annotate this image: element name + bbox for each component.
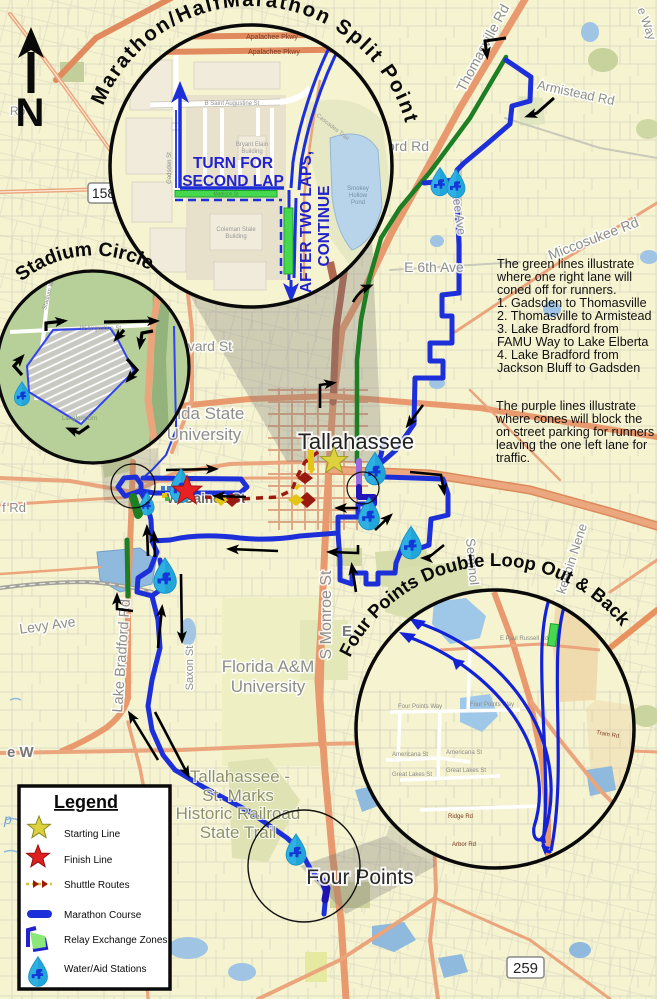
svg-text:Tallahassee -: Tallahassee - bbox=[190, 767, 290, 786]
svg-text:where one right lane will: where one right lane will bbox=[496, 270, 632, 284]
svg-text:University: University bbox=[231, 677, 306, 696]
svg-text:St. Marks: St. Marks bbox=[202, 786, 274, 805]
svg-text:where cones will block the: where cones will block the bbox=[495, 412, 642, 426]
svg-text:Jackson Bluff to Gadsden: Jackson Bluff to Gadsden bbox=[497, 361, 640, 375]
svg-text:Tallahassee: Tallahassee bbox=[298, 429, 414, 454]
svg-text:Historic Railroad: Historic Railroad bbox=[176, 804, 301, 823]
svg-text:1. Gadsden to Thomasville: 1. Gadsden to Thomasville bbox=[497, 296, 647, 310]
svg-text:N: N bbox=[16, 91, 45, 135]
svg-text:leaving the one left lane for: leaving the one left lane for bbox=[496, 438, 647, 452]
svg-text:Starting Line: Starting Line bbox=[64, 829, 121, 840]
svg-text:Pond: Pond bbox=[351, 200, 365, 206]
svg-text:Bryant Elain: Bryant Elain bbox=[236, 142, 268, 148]
svg-text:Relay Exchange Zones: Relay Exchange Zones bbox=[64, 935, 167, 946]
svg-text:Gadsden St: Gadsden St bbox=[167, 152, 173, 184]
svg-text:Americana St: Americana St bbox=[446, 750, 482, 756]
svg-text:Great Lakes St: Great Lakes St bbox=[392, 772, 432, 778]
svg-text:coned off for runners.: coned off for runners. bbox=[497, 283, 616, 297]
svg-text:Marathon Course: Marathon Course bbox=[64, 910, 142, 921]
svg-text:Shuttle Routes: Shuttle Routes bbox=[64, 880, 130, 891]
svg-text:Hollow: Hollow bbox=[349, 193, 368, 199]
svg-text:p: p bbox=[3, 811, 12, 827]
svg-text:Apalachee Pkwy: Apalachee Pkwy bbox=[246, 34, 298, 41]
svg-text:Ridge Rd: Ridge Rd bbox=[448, 814, 473, 820]
svg-text:Coleman Stale: Coleman Stale bbox=[216, 227, 256, 233]
svg-text:Saxon St: Saxon St bbox=[184, 646, 196, 691]
svg-text:The green lines illustrate: The green lines illustrate bbox=[497, 257, 634, 271]
svg-text:3. Lake Bradford from: 3. Lake Bradford from bbox=[497, 322, 619, 336]
svg-text:Americana St: Americana St bbox=[392, 752, 428, 758]
svg-text:S Monroe St: S Monroe St bbox=[318, 570, 335, 659]
svg-text:Legend: Legend bbox=[54, 792, 118, 812]
svg-text:FAMU Way to Lake Elberta: FAMU Way to Lake Elberta bbox=[497, 335, 648, 349]
svg-text:TURN FOR: TURN FOR bbox=[193, 155, 273, 172]
svg-text:Building: Building bbox=[225, 234, 246, 240]
svg-text:Finish Line: Finish Line bbox=[64, 855, 113, 866]
svg-text:Langford Grn: Langford Grn bbox=[62, 416, 97, 422]
svg-text:E 6th Ave: E 6th Ave bbox=[404, 259, 464, 275]
svg-text:University: University bbox=[167, 425, 242, 444]
svg-text:ord Rd: ord Rd bbox=[387, 138, 429, 154]
svg-text:AFTER TWO LAPS,: AFTER TWO LAPS, bbox=[298, 151, 315, 293]
svg-text:2. Thomasville to Armistead: 2. Thomasville to Armistead bbox=[497, 309, 651, 323]
svg-text:259: 259 bbox=[513, 960, 538, 977]
svg-text:Madison St: Madison St bbox=[213, 192, 239, 198]
svg-text:on street parking for runners: on street parking for runners bbox=[496, 425, 654, 439]
svg-text:Arbor Rd: Arbor Rd bbox=[452, 842, 476, 848]
svg-text:f Rd: f Rd bbox=[2, 500, 26, 515]
svg-text:e W: e W bbox=[7, 744, 35, 761]
svg-text:Great Lakes St: Great Lakes St bbox=[446, 768, 486, 774]
svg-text:Florida A&M: Florida A&M bbox=[222, 657, 315, 676]
svg-text:Four Points Way: Four Points Way bbox=[398, 704, 442, 710]
svg-text:SECOND LAP: SECOND LAP bbox=[182, 173, 284, 190]
svg-text:rida State: rida State bbox=[172, 404, 245, 423]
svg-text:B Saint Augustine St: B Saint Augustine St bbox=[205, 101, 260, 107]
svg-text:CONTINUE: CONTINUE bbox=[316, 186, 333, 267]
svg-text:W Augustine St: W Augustine St bbox=[80, 326, 121, 332]
svg-text:The purple lines illustrate: The purple lines illustrate bbox=[496, 399, 636, 413]
svg-text:Apalachee Pkwy: Apalachee Pkwy bbox=[248, 49, 300, 56]
svg-text:traffic.: traffic. bbox=[496, 451, 530, 465]
svg-text:4. Lake Bradford from: 4. Lake Bradford from bbox=[497, 348, 619, 362]
svg-text:Smokey: Smokey bbox=[347, 186, 369, 192]
svg-text:Water/Aid Stations: Water/Aid Stations bbox=[64, 964, 146, 975]
